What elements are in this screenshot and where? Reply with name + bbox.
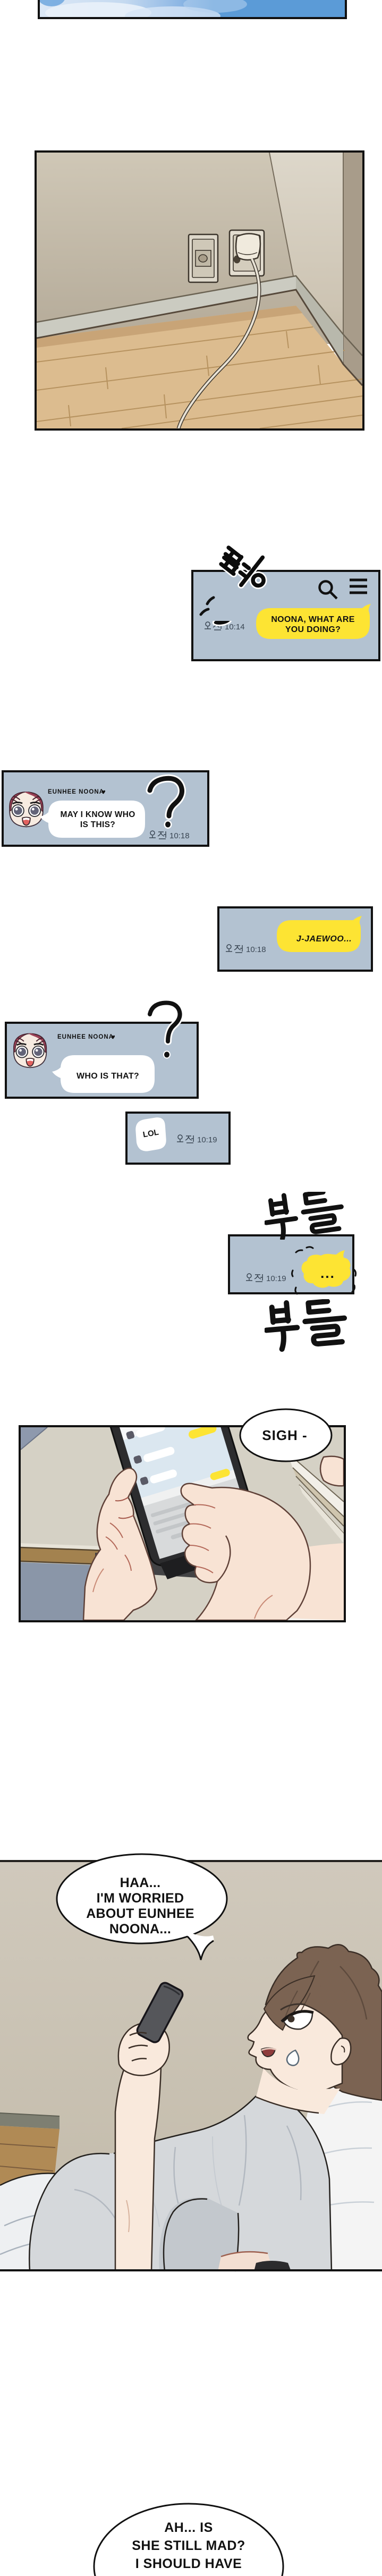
svg-text:HAA...: HAA... <box>120 1875 161 1890</box>
svg-text:10:19: 10:19 <box>197 1135 217 1144</box>
svg-text:MAY I KNOW WHO: MAY I KNOW WHO <box>60 810 135 819</box>
svg-text:EUNHEE NOONA: EUNHEE NOONA <box>48 789 104 795</box>
svg-text:NOONA, WHAT ARE: NOONA, WHAT ARE <box>271 615 354 624</box>
svg-text:EUNHEE NOONA: EUNHEE NOONA <box>57 1034 114 1040</box>
svg-text:♥: ♥ <box>101 788 106 796</box>
svg-text:AH... IS: AH... IS <box>164 2520 213 2535</box>
svg-text:SHE STILL MAD?: SHE STILL MAD? <box>132 2538 245 2553</box>
svg-text:WHO IS THAT?: WHO IS THAT? <box>77 1072 139 1081</box>
svg-text:J-JAEWOO...: J-JAEWOO... <box>296 935 352 944</box>
svg-text:IS THIS?: IS THIS? <box>80 820 115 829</box>
svg-text:I SHOULD HAVE: I SHOULD HAVE <box>135 2556 242 2571</box>
svg-text:ABOUT EUNHEE: ABOUT EUNHEE <box>86 1906 194 1921</box>
svg-text:NOONA...: NOONA... <box>109 1922 171 1937</box>
svg-text:10:18: 10:18 <box>246 945 266 954</box>
svg-text:SIGH -: SIGH - <box>262 1427 307 1443</box>
svg-text:I'M WORRIED: I'M WORRIED <box>97 1891 184 1906</box>
svg-text:YOU DOING?: YOU DOING? <box>285 625 341 634</box>
svg-text:10:19: 10:19 <box>266 1274 286 1283</box>
svg-text:...: ... <box>320 1265 335 1281</box>
svg-text:♥: ♥ <box>111 1033 115 1041</box>
